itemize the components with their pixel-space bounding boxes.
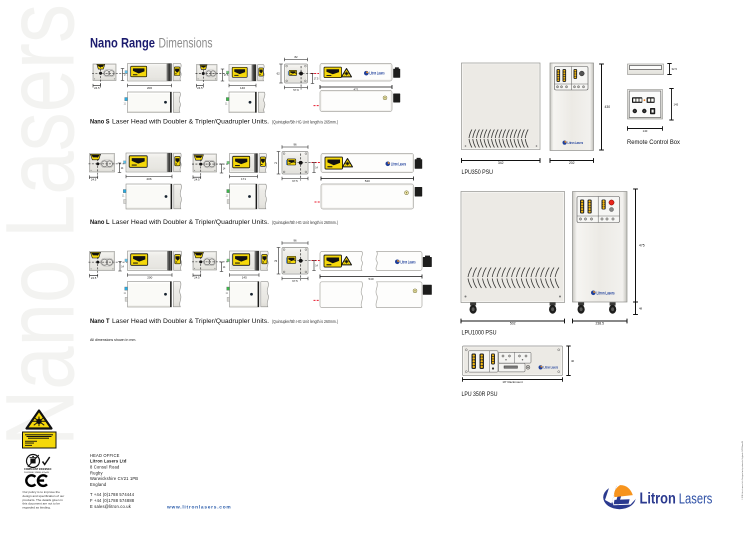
- svg-text:Nano Lasers: Nano Lasers: [0, 4, 95, 446]
- svg-text:11: 11: [124, 292, 127, 295]
- svg-text:140: 140: [240, 86, 245, 90]
- svg-text:Litron Lasers: Litron Lasers: [401, 259, 416, 264]
- svg-text:LPU1000 PSU: LPU1000 PSU: [462, 330, 497, 337]
- svg-text:England: England: [90, 482, 107, 487]
- svg-text:Litron Lasers: Litron Lasers: [544, 365, 559, 370]
- svg-text:Nano Range: Nano Range: [90, 36, 155, 51]
- svg-text:F +44 (0)1788 574888: F +44 (0)1788 574888: [90, 498, 135, 503]
- svg-text:57.9: 57.9: [293, 88, 299, 92]
- svg-text:67.5: 67.5: [292, 279, 298, 283]
- svg-text:Litron Lasers: Litron Lasers: [568, 140, 584, 145]
- svg-text:(Quintupler/5th HG Unit length: (Quintupler/5th HG Unit length is 260mm.…: [272, 220, 338, 225]
- svg-text:Warwickshire CV21 1PB: Warwickshire CV21 1PB: [90, 476, 138, 481]
- svg-text:19” Rackmount: 19” Rackmount: [502, 380, 523, 384]
- svg-text:(Quintupler/5th HG Unit length: (Quintupler/5th HG Unit length is 265mm.…: [272, 120, 338, 125]
- svg-text:14: 14: [223, 266, 226, 269]
- svg-text:540: 540: [365, 179, 370, 183]
- svg-text:COMPLIANT 2002/95/EC: COMPLIANT 2002/95/EC: [24, 468, 52, 471]
- svg-text:17.5: 17.5: [314, 78, 319, 81]
- svg-text:11: 11: [225, 103, 228, 106]
- svg-text:206: 206: [146, 177, 151, 181]
- svg-text:140: 140: [643, 129, 648, 133]
- svg-text:14: 14: [121, 265, 124, 268]
- svg-text:Lasers: Lasers: [679, 492, 713, 508]
- svg-text:Laser Head with Doubler & Trip: Laser Head with Doubler & Tripler/Quadru…: [112, 319, 269, 325]
- svg-text:475: 475: [639, 244, 645, 248]
- svg-text:LPU 350R PSU: LPU 350R PSU: [462, 391, 498, 398]
- svg-text:238.5: 238.5: [596, 321, 605, 325]
- svg-text:14: 14: [315, 167, 318, 170]
- svg-text:Laser Head with Doubler & Trip: Laser Head with Doubler & Tripler/Quadru…: [112, 220, 269, 226]
- svg-text:Nano S: Nano S: [90, 120, 110, 126]
- svg-text:Litron Lasers: Litron Lasers: [370, 71, 385, 76]
- svg-text:40: 40: [571, 359, 575, 363]
- svg-text:14: 14: [121, 167, 124, 170]
- svg-text:T +44 (0)1788 574444: T +44 (0)1788 574444: [90, 492, 135, 497]
- svg-text:14: 14: [315, 265, 318, 268]
- svg-text:32.5: 32.5: [672, 67, 678, 71]
- svg-text:96: 96: [293, 238, 297, 242]
- svg-text:67.5: 67.5: [292, 179, 298, 183]
- svg-text:14: 14: [223, 168, 226, 171]
- svg-text:17.5: 17.5: [224, 74, 229, 77]
- svg-text:11: 11: [226, 195, 229, 198]
- svg-text:540: 540: [368, 277, 373, 281]
- svg-text:24.5: 24.5: [197, 86, 203, 90]
- svg-text:11: 11: [124, 103, 127, 106]
- svg-text:HEAD OFFICE: HEAD OFFICE: [90, 453, 120, 458]
- svg-text:regarded as binding.: regarded as binding.: [23, 506, 51, 510]
- svg-text:202: 202: [569, 161, 575, 165]
- svg-text:24.5: 24.5: [91, 178, 97, 182]
- svg-text:171: 171: [241, 177, 246, 181]
- svg-text:E sales@litron.co.uk: E sales@litron.co.uk: [90, 504, 132, 509]
- svg-text:62: 62: [277, 72, 281, 76]
- svg-text:430: 430: [605, 105, 611, 109]
- svg-text:Rugby: Rugby: [90, 470, 104, 475]
- svg-text:Litron Lasers: Litron Lasers: [391, 161, 406, 166]
- svg-text:8 Consul Road: 8 Consul Road: [90, 465, 120, 470]
- svg-text:11: 11: [226, 292, 229, 295]
- svg-text:Litron Lasers: Litron Lasers: [597, 290, 615, 295]
- svg-text:Remote Control Box: Remote Control Box: [627, 139, 681, 146]
- svg-text:145: 145: [674, 102, 679, 106]
- svg-text:All dimensions shown in mm.: All dimensions shown in mm.: [90, 338, 136, 342]
- svg-text:© 2011 Litron Lasers Ltd • Des: © 2011 Litron Lasers Ltd • Designed and …: [741, 440, 744, 500]
- svg-text:82: 82: [294, 55, 298, 59]
- svg-text:Nano L: Nano L: [90, 220, 110, 226]
- svg-text:Litron Lasers Ltd: Litron Lasers Ltd: [90, 459, 127, 464]
- svg-text:Dimensions: Dimensions: [159, 36, 213, 51]
- svg-text:96: 96: [293, 142, 297, 146]
- svg-text:Laser Head with Doubler & Trip: Laser Head with Doubler & Tripler/Quadru…: [112, 120, 269, 126]
- svg-text:2002/96/EC WEEE & RoHS: 2002/96/EC WEEE & RoHS: [24, 472, 49, 474]
- svg-text:48: 48: [639, 306, 643, 310]
- svg-text:145: 145: [242, 275, 247, 279]
- svg-text:LPU350 PSU: LPU350 PSU: [462, 169, 494, 176]
- svg-text:Nano T: Nano T: [90, 319, 110, 325]
- svg-text:24.5: 24.5: [94, 86, 100, 90]
- svg-text:24.5: 24.5: [194, 178, 200, 182]
- svg-text:(Quintupler/5th HG Unit length: (Quintupler/5th HG Unit length is 260mm.…: [272, 319, 338, 324]
- svg-text:24.5: 24.5: [91, 276, 97, 280]
- svg-text:11: 11: [122, 195, 125, 198]
- svg-text:206: 206: [147, 86, 152, 90]
- svg-text:Litron: Litron: [640, 491, 676, 508]
- svg-text:24.5: 24.5: [194, 276, 200, 280]
- svg-text:71: 71: [274, 161, 278, 165]
- svg-text:www.litronlasers.com: www.litronlasers.com: [166, 505, 231, 511]
- svg-text:342: 342: [498, 161, 504, 165]
- svg-text:76: 76: [274, 259, 278, 263]
- svg-text:502: 502: [510, 321, 516, 325]
- svg-text:200: 200: [147, 275, 152, 279]
